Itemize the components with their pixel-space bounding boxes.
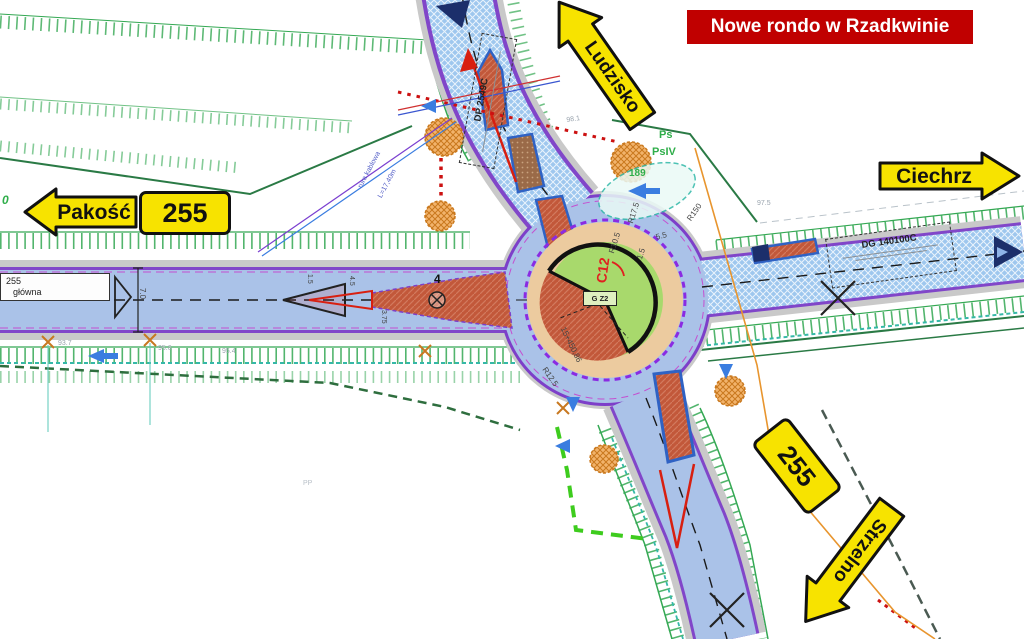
marker-x-icons — [42, 334, 569, 414]
chainage-label: 97.5 — [757, 200, 771, 207]
sign-pakosc: Pakość — [22, 186, 140, 238]
soil-label-ps: Ps — [659, 130, 672, 141]
parcel-label: 189 — [629, 169, 646, 179]
field-hatch-rows — [0, 14, 428, 168]
title-banner: Nowe rondo w Rzadkwinie — [687, 10, 973, 44]
chainage-label: 95.4 — [222, 348, 236, 355]
chainage-label: 93.7 — [58, 340, 72, 347]
dim-label: 3.75 — [380, 310, 387, 324]
c12-sign-label: C12 — [594, 257, 611, 284]
road-name: główna — [13, 287, 42, 297]
sign-ciechrz-label: Ciechrz — [896, 165, 972, 188]
node-number: 4 — [434, 273, 441, 285]
station-zero-label: 0 — [2, 194, 9, 206]
road-number: 255 — [6, 276, 21, 286]
soil-label-psiv: PsIV — [652, 147, 676, 158]
sign-pakosc-label: Pakość — [57, 201, 131, 224]
roundabout-site-plan: 255 główna 0 93.7 95.6 95.4 97.5 98.1 18… — [0, 0, 1024, 639]
route-255-badge-west: 255 — [139, 191, 231, 235]
faint-label: PP — [303, 480, 312, 487]
road-id-box: 255 główna — [0, 273, 110, 301]
dim-label: 4.5 — [348, 276, 355, 286]
dim-label: 7.0 — [138, 288, 146, 299]
dim-label: 1.5 — [306, 274, 313, 284]
sign-ciechrz: Ciechrz — [876, 149, 1024, 203]
chainage-label: 95.6 — [158, 345, 172, 352]
gz2-plate: G Z2 — [583, 291, 617, 306]
station-symbol-icon — [429, 292, 445, 308]
